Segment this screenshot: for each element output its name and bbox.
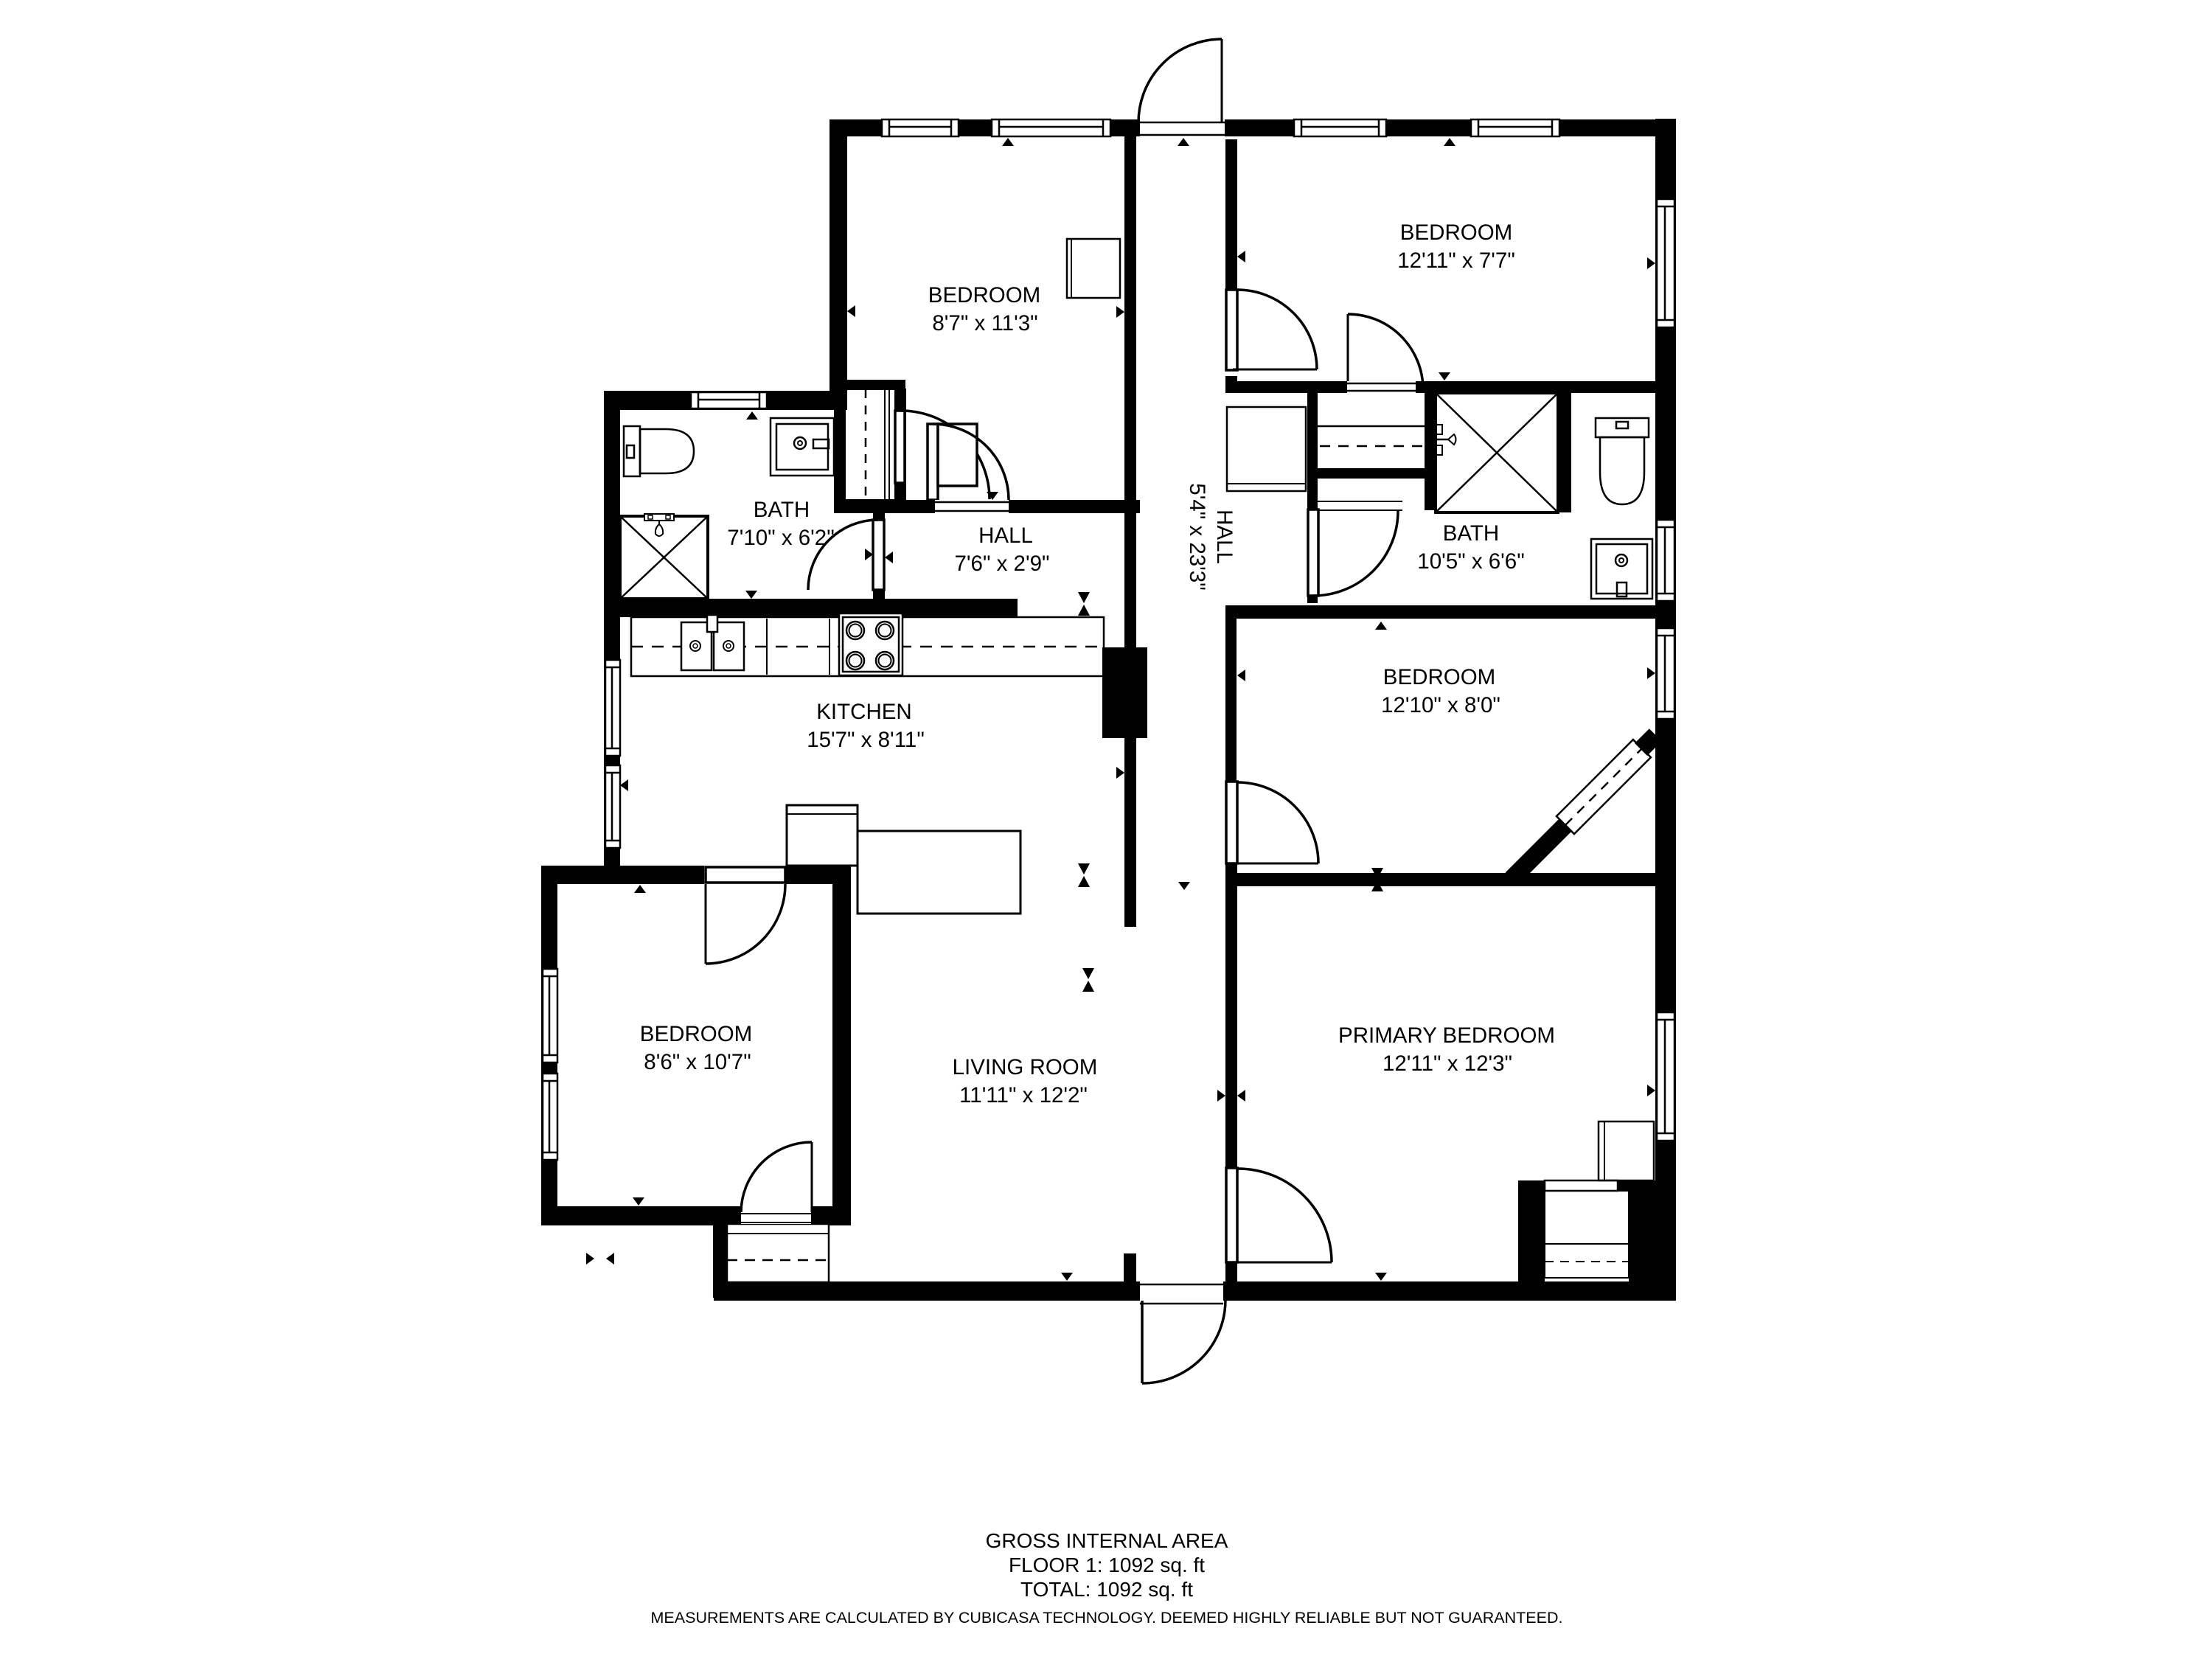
svg-text:TOTAL: 1092 sq. ft: TOTAL: 1092 sq. ft (1020, 1578, 1193, 1601)
svg-text:BEDROOM: BEDROOM (640, 1022, 752, 1046)
svg-text:HALL: HALL (978, 524, 1033, 548)
svg-text:KITCHEN: KITCHEN (816, 700, 911, 724)
svg-text:7'10" x 6'2": 7'10" x 6'2" (727, 526, 834, 550)
svg-text:7'6" x 2'9": 7'6" x 2'9" (955, 552, 1050, 576)
svg-text:5'4" x 23'3": 5'4" x 23'3" (1185, 483, 1209, 590)
svg-text:FLOOR 1: 1092 sq. ft: FLOOR 1: 1092 sq. ft (1009, 1554, 1205, 1576)
svg-text:12'11" x 7'7": 12'11" x 7'7" (1397, 248, 1515, 273)
svg-text:BEDROOM: BEDROOM (928, 283, 1040, 307)
svg-text:12'10" x 8'0": 12'10" x 8'0" (1381, 693, 1500, 717)
svg-text:BEDROOM: BEDROOM (1400, 220, 1512, 245)
svg-text:HALL: HALL (1212, 509, 1237, 564)
svg-text:MEASUREMENTS ARE CALCULATED BY: MEASUREMENTS ARE CALCULATED BY CUBICASA … (651, 1609, 1563, 1627)
svg-text:10'5" x 6'6": 10'5" x 6'6" (1417, 549, 1524, 574)
svg-text:15'7" x 8'11": 15'7" x 8'11" (807, 728, 925, 752)
svg-text:PRIMARY BEDROOM: PRIMARY BEDROOM (1338, 1023, 1555, 1048)
svg-text:LIVING ROOM: LIVING ROOM (953, 1055, 1098, 1079)
svg-text:11'11" x 12'2": 11'11" x 12'2" (959, 1083, 1088, 1107)
svg-text:BEDROOM: BEDROOM (1383, 665, 1495, 689)
svg-text:GROSS INTERNAL AREA: GROSS INTERNAL AREA (986, 1529, 1228, 1552)
svg-text:BATH: BATH (1443, 521, 1500, 546)
svg-text:BATH: BATH (754, 498, 810, 522)
svg-text:8'7" x 11'3": 8'7" x 11'3" (932, 311, 1037, 335)
svg-text:8'6" x 10'7": 8'6" x 10'7" (644, 1050, 751, 1074)
svg-text:12'11" x 12'3": 12'11" x 12'3" (1382, 1051, 1512, 1076)
